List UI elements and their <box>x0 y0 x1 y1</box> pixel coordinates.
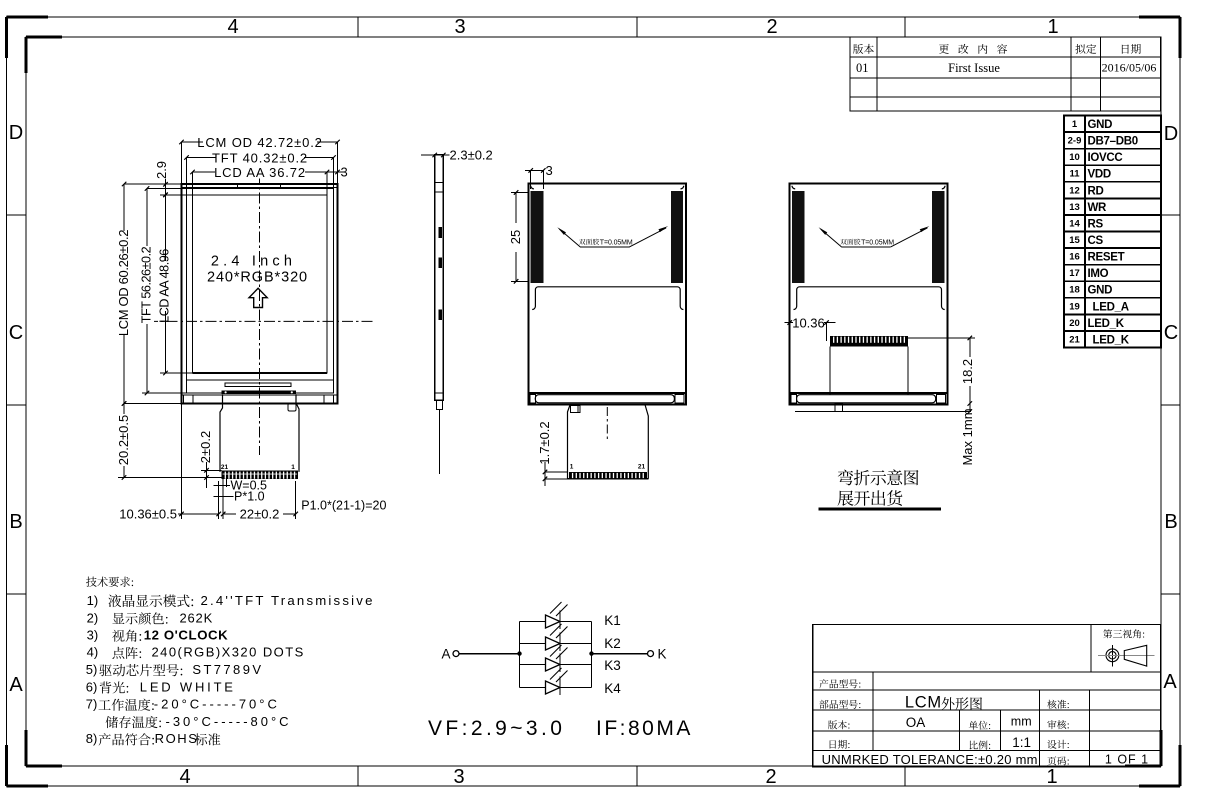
svg-text:5): 5) <box>86 662 98 677</box>
svg-text:LED_K: LED_K <box>1093 335 1130 347</box>
svg-text:D: D <box>1164 123 1178 145</box>
svg-text:240*RGB*320: 240*RGB*320 <box>207 270 308 286</box>
svg-text:3: 3 <box>454 16 465 38</box>
svg-text:4: 4 <box>227 16 238 38</box>
svg-text:4: 4 <box>179 766 190 788</box>
svg-text:15: 15 <box>1069 235 1080 246</box>
svg-text:21: 21 <box>638 464 646 471</box>
svg-text:K4: K4 <box>604 681 621 696</box>
svg-text:VF:2.9~3.0: VF:2.9~3.0 <box>428 717 565 740</box>
svg-text:ROHS: ROHS <box>155 731 199 746</box>
svg-text:D: D <box>9 122 23 144</box>
svg-text:1): 1) <box>87 593 99 608</box>
svg-text:1: 1 <box>570 464 574 471</box>
svg-text:25: 25 <box>508 230 523 244</box>
svg-text:262K: 262K <box>180 610 214 625</box>
svg-text:2.3±0.2: 2.3±0.2 <box>450 147 493 162</box>
svg-text:1 OF 1: 1 OF 1 <box>1105 753 1149 767</box>
svg-text:GND: GND <box>1088 119 1113 131</box>
svg-text:10.36±0.5: 10.36±0.5 <box>119 507 177 522</box>
svg-text:3: 3 <box>341 165 348 180</box>
svg-text:22±0.2: 22±0.2 <box>240 506 280 521</box>
svg-text:12 O'CLOCK: 12 O'CLOCK <box>144 628 229 643</box>
svg-text:ST7789V: ST7789V <box>192 662 263 677</box>
svg-text:First Issue: First Issue <box>948 61 1000 75</box>
svg-text:21: 21 <box>1069 335 1080 346</box>
svg-text:1: 1 <box>291 464 295 471</box>
svg-text:8): 8) <box>86 731 98 746</box>
svg-text:OA: OA <box>906 715 926 730</box>
svg-text:IF:80MA: IF:80MA <box>596 717 693 740</box>
svg-text:K: K <box>658 647 667 662</box>
svg-text:-30°C-----80°C: -30°C-----80°C <box>166 714 292 729</box>
svg-text:4): 4) <box>87 645 99 660</box>
svg-text:LED_A: LED_A <box>1093 301 1129 313</box>
svg-text:RS: RS <box>1088 218 1104 230</box>
svg-text:2±0.2: 2±0.2 <box>198 431 213 463</box>
svg-text:GND: GND <box>1088 285 1113 297</box>
svg-text:LCD AA 48.96: LCD AA 48.96 <box>158 249 172 323</box>
svg-text:A: A <box>442 647 451 662</box>
svg-text:LED_K: LED_K <box>1088 318 1125 330</box>
svg-text:IMO: IMO <box>1088 268 1109 280</box>
svg-text:10: 10 <box>1069 152 1080 163</box>
svg-text:RD: RD <box>1088 185 1104 197</box>
svg-text:16: 16 <box>1069 252 1080 263</box>
svg-text:11: 11 <box>1069 169 1080 180</box>
svg-text:RESET: RESET <box>1088 252 1125 264</box>
svg-text:21: 21 <box>221 464 229 471</box>
svg-text:6): 6) <box>86 679 98 694</box>
svg-text:2016/05/06: 2016/05/06 <box>1102 61 1157 75</box>
svg-text:12: 12 <box>1069 185 1080 196</box>
svg-text:18.2: 18.2 <box>960 359 975 384</box>
svg-text:10.36: 10.36 <box>792 315 825 330</box>
svg-text:C: C <box>9 322 23 344</box>
svg-text:7): 7) <box>86 697 98 712</box>
svg-text:UNMRKED TOLERANCE:±0.20 mm: UNMRKED TOLERANCE:±0.20 mm <box>822 752 1038 767</box>
svg-text:2): 2) <box>87 610 99 625</box>
svg-text:01: 01 <box>856 61 869 75</box>
svg-text:1: 1 <box>1046 766 1057 788</box>
svg-text:2: 2 <box>765 766 776 788</box>
svg-text:1: 1 <box>1072 119 1078 130</box>
svg-text:19: 19 <box>1069 301 1080 312</box>
svg-text:17: 17 <box>1069 268 1080 279</box>
svg-text:B: B <box>1164 511 1177 533</box>
svg-text:2.4 Inch: 2.4 Inch <box>211 254 296 270</box>
svg-text:2: 2 <box>766 16 777 38</box>
svg-text:IOVCC: IOVCC <box>1088 152 1123 164</box>
svg-text:VDD: VDD <box>1088 169 1111 181</box>
svg-text:mm: mm <box>1011 715 1032 729</box>
svg-text:DB7–DB0: DB7–DB0 <box>1088 136 1138 148</box>
svg-text:WR: WR <box>1088 202 1108 214</box>
svg-text:1: 1 <box>1047 16 1058 38</box>
svg-text:2-9: 2-9 <box>1068 136 1082 147</box>
svg-text:3: 3 <box>453 766 464 788</box>
svg-text:K3: K3 <box>604 658 621 673</box>
svg-text:P1.0*(21-1)=20: P1.0*(21-1)=20 <box>301 499 386 513</box>
svg-text:TFT 56.26±0.2: TFT 56.26±0.2 <box>140 246 154 323</box>
svg-text:CS: CS <box>1088 235 1104 247</box>
svg-text:K2: K2 <box>604 636 621 651</box>
svg-text:Max 1mm: Max 1mm <box>960 408 975 465</box>
svg-text:LCM OD 60.26±0.2: LCM OD 60.26±0.2 <box>116 230 131 336</box>
svg-text:3: 3 <box>546 163 553 178</box>
svg-text:2.4''TFT Transmissive: 2.4''TFT Transmissive <box>201 593 375 608</box>
svg-text:-20°C-----70°C: -20°C-----70°C <box>154 697 280 712</box>
svg-text:B: B <box>9 511 22 533</box>
svg-text:1.7±0.2: 1.7±0.2 <box>537 421 552 464</box>
svg-text:240(RGB)X320 DOTS: 240(RGB)X320 DOTS <box>152 645 305 660</box>
svg-text:T=0.05MM: T=0.05MM <box>600 239 633 246</box>
svg-text:13: 13 <box>1069 202 1080 213</box>
svg-text:T=0.05MM: T=0.05MM <box>861 239 894 246</box>
svg-text:14: 14 <box>1069 218 1080 229</box>
svg-text:TFT 40.32±0.2: TFT 40.32±0.2 <box>212 150 308 165</box>
svg-text:C: C <box>1164 322 1178 344</box>
svg-text:LED WHITE: LED WHITE <box>140 679 236 694</box>
svg-text:20: 20 <box>1069 318 1080 329</box>
svg-text:LCM OD 42.72±0.2: LCM OD 42.72±0.2 <box>197 135 323 150</box>
svg-text:18: 18 <box>1069 285 1080 296</box>
svg-text:P*1.0: P*1.0 <box>234 490 265 504</box>
svg-text:K1: K1 <box>604 613 621 628</box>
svg-text:A: A <box>9 674 23 696</box>
svg-text:LCM: LCM <box>905 694 942 712</box>
svg-text:A: A <box>1163 671 1177 693</box>
svg-text:1:1: 1:1 <box>1012 735 1031 750</box>
svg-text:3): 3) <box>87 628 99 643</box>
svg-text:2.9: 2.9 <box>154 161 169 179</box>
svg-text:LCD AA 36.72: LCD AA 36.72 <box>214 165 306 180</box>
svg-text:20.2±0.5: 20.2±0.5 <box>116 415 131 466</box>
